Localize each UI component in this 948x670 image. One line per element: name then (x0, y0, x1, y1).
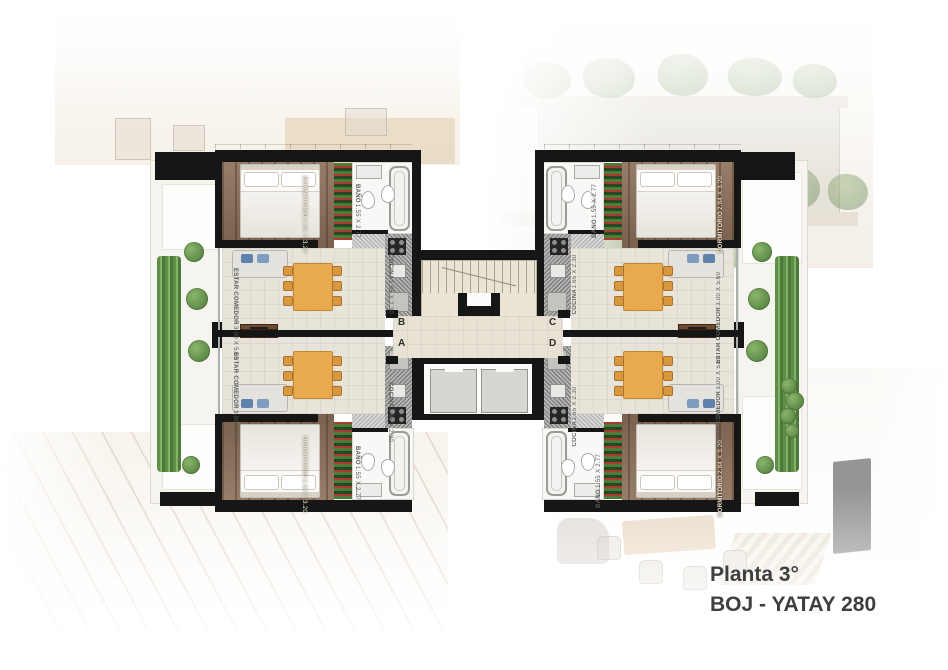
hedge-right (775, 256, 799, 472)
hanging-vine (780, 408, 796, 424)
room-label-dormitorio: DORMITORIO2.84 X 3.20 (300, 436, 307, 513)
exterior-wall (215, 414, 222, 500)
sofa-cushion (703, 254, 715, 263)
room-label-estar: ESTAR COMEDOR3.00 X 5.60 (716, 356, 723, 448)
sofa-cushion (241, 399, 253, 408)
sofa (232, 250, 288, 278)
dining-chair (663, 296, 673, 306)
double-bed (240, 424, 320, 498)
bathroom-floor (352, 162, 414, 234)
terrace-wall (733, 152, 795, 180)
toilet (381, 185, 395, 203)
staircase (421, 260, 537, 318)
dining-chair (332, 371, 342, 381)
exterior-wall (215, 500, 412, 512)
living-dining-floor (571, 330, 734, 414)
terrace-paving (162, 184, 218, 250)
dining-chair (663, 371, 673, 381)
room-label-cocina: COCINA1.65 X 2.30 (572, 386, 579, 446)
fridge (547, 292, 567, 312)
dining-chair (332, 296, 342, 306)
duvet (241, 425, 319, 471)
dining-chair (332, 386, 342, 396)
party-wall (556, 330, 741, 337)
kitchen-counter (544, 234, 571, 316)
core-wall (412, 150, 421, 316)
dining-chair (614, 386, 624, 396)
living-dining-floor (571, 248, 734, 332)
plant-pot (182, 456, 200, 474)
window-glass (218, 248, 220, 332)
door-jamb (386, 356, 398, 364)
kitchen-sink (550, 264, 566, 278)
dining-chair (663, 266, 673, 276)
dining-chair (663, 386, 673, 396)
double-bed (240, 164, 320, 238)
window-glass (736, 248, 738, 332)
core-wall (412, 250, 544, 260)
dimension-ticks (215, 144, 412, 149)
sofa-cushion (703, 399, 715, 408)
plant-pot (756, 456, 774, 474)
exterior-wall (544, 150, 741, 162)
vertical-garden (604, 163, 622, 240)
pillow (281, 172, 316, 187)
dining-chair (283, 281, 293, 291)
door-jamb (558, 310, 570, 318)
bidet (361, 453, 375, 471)
elevator-car (481, 369, 528, 413)
bedroom-floor (222, 162, 334, 248)
plant-pot (746, 340, 768, 362)
kitchen-sink (550, 384, 566, 398)
vertical-garden (604, 422, 622, 499)
living-dining-floor (222, 330, 385, 414)
room-label-estar: ESTAR COMEDOR3.00 X 5.60 (231, 268, 238, 360)
duvet (637, 425, 715, 471)
exterior-wall (734, 414, 741, 500)
room-label-estar: ESTAR COMEDOR3.00 X 5.60 (716, 272, 723, 364)
stove (550, 238, 568, 255)
stove (550, 407, 568, 424)
double-bed (636, 164, 716, 238)
unit-letter-c: C (549, 317, 556, 328)
terrace-wall (155, 152, 217, 180)
exterior-wall (215, 162, 222, 248)
unit-letter-b: B (398, 317, 405, 328)
vertical-garden (334, 163, 352, 240)
room-label-bano: BAÑO1.55 X 2.77 (592, 184, 599, 238)
dining-chair (663, 281, 673, 291)
headboard (241, 165, 319, 170)
dining-chair (283, 371, 293, 381)
sink-vanity (574, 165, 600, 179)
dining-chair (332, 281, 342, 291)
room-label-cocina: COCINA1.65 X 2.30 (386, 254, 393, 314)
bathroom-floor (352, 428, 414, 500)
sofa-cushion (241, 254, 253, 263)
room-label-cocina: COCINA1.65 X 2.30 (572, 254, 579, 314)
shaft-interior (424, 364, 532, 414)
elevator-door (496, 369, 514, 372)
vertical-garden (334, 422, 352, 499)
unit-letter-a: A (398, 338, 405, 349)
sofa (232, 384, 288, 412)
door-jamb (558, 356, 570, 364)
room-label-dormitorio: DORMITORIO2.84 X 3.20 (718, 176, 725, 253)
dining-chair (332, 266, 342, 276)
floor-plan-page: B C A D DORMITORIO2.84 X 3.20 BAÑO1.55 X… (0, 0, 948, 670)
exterior-wall (544, 500, 741, 512)
stove (388, 238, 406, 255)
dining-chair (332, 356, 342, 366)
plant-pot (184, 242, 204, 262)
pillow (281, 475, 316, 490)
headboard (637, 492, 715, 497)
window-glass (218, 330, 220, 414)
dining-chair (663, 356, 673, 366)
dining-chair (614, 371, 624, 381)
pillow (244, 172, 279, 187)
sink-vanity (356, 165, 382, 179)
dining-chair (283, 356, 293, 366)
terrace-wall (160, 492, 218, 506)
pillow (640, 172, 675, 187)
plant-pot (748, 288, 770, 310)
headboard (241, 492, 319, 497)
elevator-door (445, 369, 463, 372)
dining-chair (614, 296, 624, 306)
sofa-cushion (257, 399, 269, 408)
bidet (581, 453, 595, 471)
dining-table (293, 263, 333, 311)
bidet (361, 191, 375, 209)
plant-pot (186, 288, 208, 310)
dining-chair (614, 356, 624, 366)
hanging-vine (785, 424, 799, 438)
unit-letter-d: D (549, 338, 556, 349)
corridor (393, 316, 563, 358)
living-dining-floor (222, 248, 385, 332)
bedroom-floor (222, 414, 334, 500)
room-label-estar: ESTAR COMEDOR3.00 X 5.60 (231, 352, 238, 444)
room-label-dormitorio: DORMITORIO2.84 X 3.20 (718, 440, 725, 517)
apartment-unit-a (215, 330, 412, 512)
pillow (677, 172, 712, 187)
pillow (640, 475, 675, 490)
terrace-wall (755, 492, 799, 506)
dining-chair (283, 296, 293, 306)
duvet (637, 191, 715, 237)
exterior-wall (734, 162, 741, 248)
sofa-cushion (687, 254, 699, 263)
dining-table (623, 263, 663, 311)
room-label-bano: BAÑO1.55 X 2.77 (353, 446, 360, 500)
terrace-paving (742, 172, 802, 264)
pillow (244, 475, 279, 490)
room-label-dormitorio: DORMITORIO2.84 X 3.20 (300, 176, 307, 253)
plan-title: Planta 3° BOJ - YATAY 280 (710, 560, 876, 620)
dining-chair (283, 386, 293, 396)
elevator-car (430, 369, 477, 413)
plant-pot (752, 242, 772, 262)
pillow (677, 475, 712, 490)
dining-chair (614, 281, 624, 291)
dining-chair (283, 266, 293, 276)
apartment-unit-b (215, 150, 412, 332)
stair-landing (467, 293, 491, 306)
room-label-bano: BAÑO1.55 X 2.77 (353, 184, 360, 238)
project-label: BOJ - YATAY 280 (710, 590, 876, 620)
dining-chair (614, 266, 624, 276)
headboard (637, 165, 715, 170)
dining-table (623, 351, 663, 399)
party-wall (215, 330, 400, 337)
room-label-cocina: COCINA1.65 X 2.30 (386, 382, 393, 442)
elevator-shaft (418, 358, 538, 420)
dining-table (293, 351, 333, 399)
dimension-ticks (544, 144, 741, 149)
toilet (561, 459, 575, 477)
floor-label: Planta 3° (710, 560, 876, 590)
room-label-bano: BAÑO1.55 X 2.77 (596, 454, 603, 508)
exterior-wall (215, 150, 412, 162)
sofa-cushion (257, 254, 269, 263)
toilet (561, 185, 575, 203)
hedge-left (157, 256, 181, 472)
double-bed (636, 424, 716, 498)
duvet (241, 191, 319, 237)
sofa-cushion (687, 399, 699, 408)
plant-pot (188, 340, 210, 362)
window-glass (736, 330, 738, 414)
